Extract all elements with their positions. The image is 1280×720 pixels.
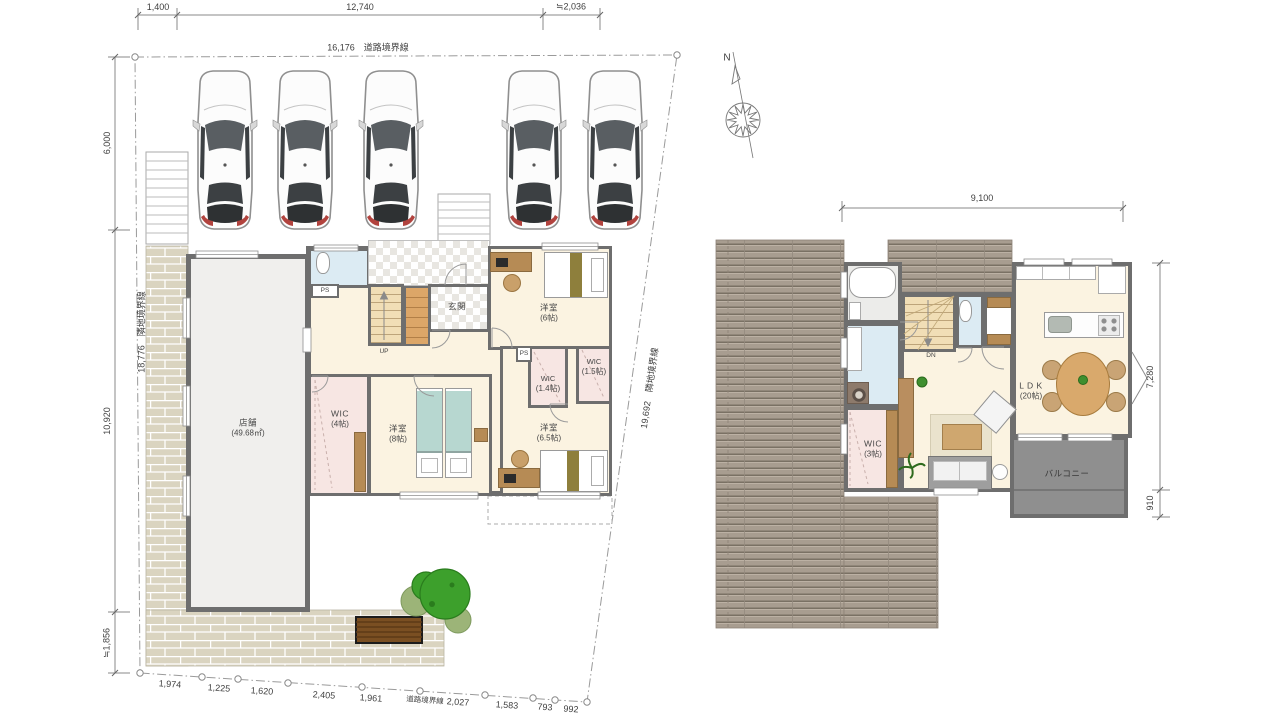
label-genkan: 玄関: [448, 301, 466, 312]
dim-left-1: 6,000: [102, 132, 112, 155]
side-table: [992, 464, 1008, 480]
dim-bottom-5: 1,961: [359, 692, 382, 704]
label-wic14: WIC(1.4帖): [536, 374, 560, 394]
bathtub: [849, 267, 896, 298]
label-bed8: 洋室(8帖): [389, 423, 407, 444]
label-dn: DN: [926, 352, 935, 360]
label-wic15: WIC(1.5帖): [582, 357, 606, 377]
kitchen-wall-cabinet: [1016, 266, 1096, 280]
refrigerator: [1098, 266, 1126, 294]
label-bed6: 洋室(6帖): [540, 302, 558, 323]
floor-plan-canvas: 1,400 12,740 ≒2,036 16,176 道路境界線 6,000 1…: [0, 0, 1280, 720]
toilet-fixture-2f: [959, 300, 972, 322]
label-bed65: 洋室(6.5帖): [537, 422, 561, 443]
desk: [490, 252, 532, 272]
neighbor-boundary-left: 18,776 隣地境界線: [135, 291, 148, 373]
stove: [1098, 315, 1120, 336]
desk-chair: [503, 274, 521, 292]
dim-bottom-6: 2,027: [446, 696, 469, 708]
twin-bed-left: [416, 388, 443, 478]
desk-chair-2: [511, 450, 529, 468]
kitchen-sink: [1048, 316, 1072, 333]
dim-bottom-1: 1,974: [158, 678, 181, 690]
dim-top-2: 12,740: [346, 2, 374, 12]
label-store: 店舗(49.68㎡): [231, 417, 264, 438]
rooms-layer: [0, 0, 1280, 720]
dim-bottom-9: 992: [563, 703, 579, 714]
shoe-cabinet: [404, 286, 430, 346]
nightstand: [474, 428, 488, 442]
road-boundary-top: 16,176 道路境界線: [327, 41, 409, 54]
dim-2f-right-balcony: 910: [1145, 495, 1155, 510]
closet-shelf-bottom: [987, 334, 1011, 345]
stairs-1f: [368, 284, 404, 346]
label-ps2: PS: [520, 350, 529, 358]
dim-bottom-2: 1,225: [207, 682, 230, 694]
label-up: UP: [379, 348, 388, 356]
wash-counter: [847, 327, 862, 371]
compass-north-label: N: [723, 53, 730, 64]
dim-bottom-8: 793: [537, 701, 553, 712]
tv-board: [898, 378, 914, 458]
dim-bottom-7: 1,583: [495, 699, 518, 711]
dining-table: [1056, 352, 1110, 416]
wic4-cabinet: [354, 432, 366, 492]
closet-shelf-top: [987, 297, 1011, 308]
label-ps1: PS: [321, 287, 330, 295]
bed-single: [544, 252, 608, 298]
bath-counter: [849, 302, 861, 320]
dining-chair: [1106, 392, 1126, 412]
washing-machine: [847, 382, 869, 404]
wic3-cabinet: [886, 410, 898, 488]
label-wic4: WIC(4帖): [331, 408, 349, 429]
sofa: [928, 456, 992, 490]
dim-top-1: 1,400: [147, 2, 170, 12]
dim-bottom-4: 2,405: [312, 689, 335, 701]
dim-2f-right-main: 7,280: [1145, 366, 1155, 389]
label-wic3: WIC(3帖): [864, 438, 882, 459]
toilet-fixture-1f: [316, 252, 330, 274]
stairs-2f: [902, 294, 956, 352]
dim-left-2: 10,920: [102, 407, 112, 435]
entrance-porch: [368, 240, 490, 286]
dim-top-3: ≒2,036: [556, 2, 586, 13]
coffee-table: [942, 424, 982, 450]
desk-2: [498, 468, 540, 488]
dim-2f-top: 9,100: [971, 193, 994, 203]
dim-left-3: ≒1,856: [102, 628, 113, 658]
twin-bed-right: [445, 388, 472, 478]
label-ldk: L D K(20帖): [1019, 380, 1042, 401]
label-balcony: バルコニー: [1045, 468, 1090, 479]
dim-bottom-3: 1,620: [250, 685, 273, 697]
bed-single-2: [540, 450, 608, 492]
